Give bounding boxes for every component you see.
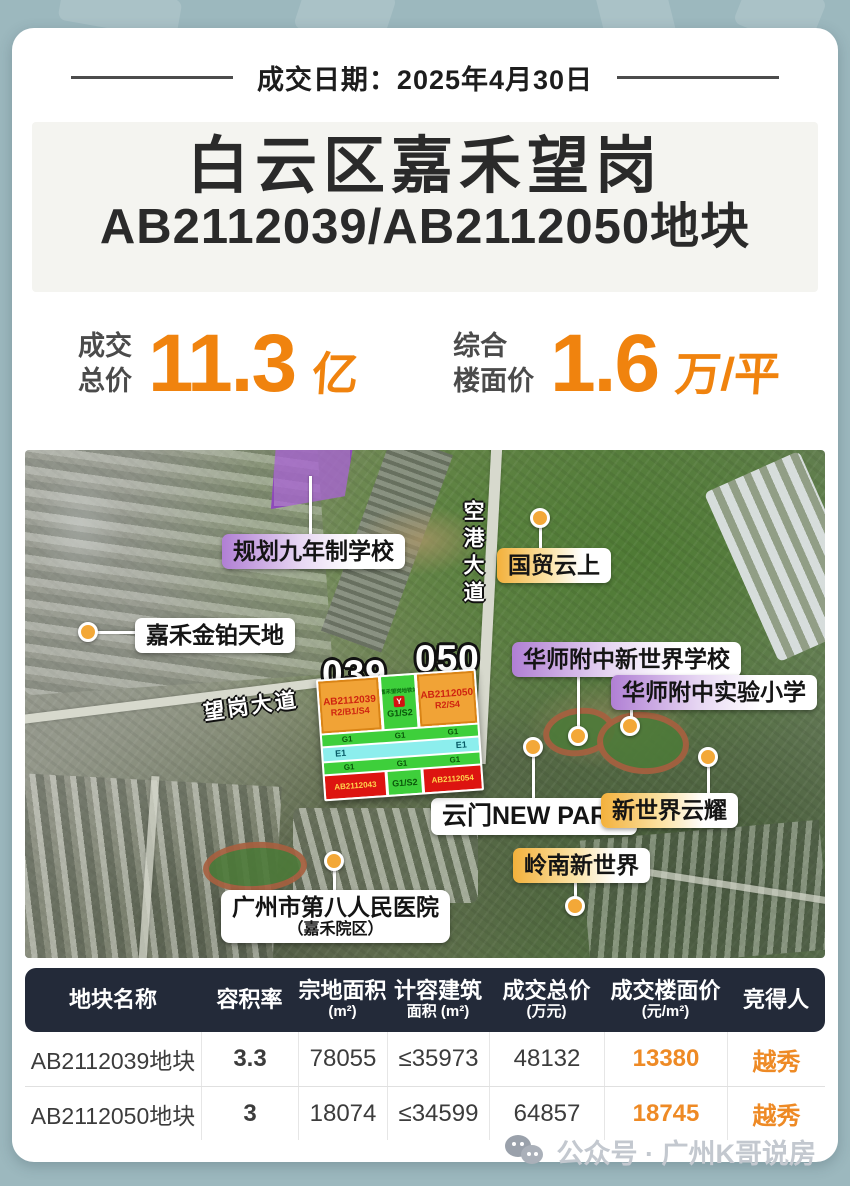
content-card: 成交日期：2025年4月30日 白云区嘉禾望岗 AB2112039/AB2112… xyxy=(12,28,838,1162)
metric-total-price-value: 11.3 xyxy=(148,325,295,403)
poi-dot-hospital xyxy=(324,851,344,871)
wechat-bubbles-icon xyxy=(505,1135,547,1169)
table-row: AB2112039地块 3.3 78055 ≤35973 48132 13380… xyxy=(25,1032,825,1086)
metric-total-price-unit: 亿 xyxy=(310,324,362,404)
metric-floor-price-unit: 万/平 xyxy=(673,324,783,404)
page-title-line1: 白云区嘉禾望岗 xyxy=(32,134,818,199)
page-title-line2: AB2112039/AB2112050地块 xyxy=(32,199,818,255)
inset-parcel-039: AB2112039 R2/B1/S4 xyxy=(318,677,381,733)
poi-dot-hsfz-primary xyxy=(620,716,640,736)
map-label-lingnan-new-world: 岭南新世界 xyxy=(513,848,650,883)
col-header-name: 地块名称 xyxy=(25,968,201,1032)
deal-date-row: 成交日期：2025年4月30日 xyxy=(12,58,838,97)
cell-far: 3.3 xyxy=(201,1032,298,1086)
cell-site-area: 78055 xyxy=(298,1032,387,1086)
cell-winner: 越秀 xyxy=(727,1032,825,1086)
title-box: 白云区嘉禾望岗 AB2112039/AB2112050地块 xyxy=(32,122,818,292)
date-decor-line-left xyxy=(71,76,233,79)
satellite-map: 规划九年制学校 国贸云上 嘉禾金铂天地 华师附中新世界学校 华师附中实验小学 云… xyxy=(25,450,825,958)
connector-line xyxy=(93,631,139,634)
metric-floor-price-label: 综合 楼面价 xyxy=(453,329,534,399)
map-warehouses xyxy=(704,451,825,662)
cell-site-area: 18074 xyxy=(298,1087,387,1140)
connector-line xyxy=(532,752,535,801)
poi-dot-yunyao xyxy=(698,747,718,767)
cell-gfa: ≤34599 xyxy=(387,1087,489,1140)
poi-dot-hsfz-new-world xyxy=(568,726,588,746)
parcel-table: 地块名称 容积率 宗地面积(m²) 计容建筑面积 (m²) 成交总价(万元) 成… xyxy=(25,968,825,1140)
connector-line xyxy=(577,672,580,734)
infographic-canvas: 成交日期：2025年4月30日 白云区嘉禾望岗 AB2112039/AB2112… xyxy=(0,0,850,1186)
table-header-row: 地块名称 容积率 宗地面积(m²) 计容建筑面积 (m²) 成交总价(万元) 成… xyxy=(25,968,825,1032)
poi-dot-lingnan xyxy=(565,896,585,916)
inset-parcel-mid-green: 嘉禾望岗地铁站 Y G1/S2 xyxy=(381,675,418,729)
col-header-floor-price: 成交楼面价(元/m²) xyxy=(604,968,727,1032)
inset-parcel-bottom-right: AB2112054 xyxy=(423,765,481,792)
metric-floor-price: 综合 楼面价 1.6 万/平 xyxy=(453,324,781,404)
planned-school-parcel-polygon xyxy=(271,450,353,509)
cell-price: 48132 xyxy=(489,1032,604,1086)
map-label-hsfz-primary: 华师附中实验小学 xyxy=(611,675,817,710)
metric-total-price: 成交 总价 11.3 亿 xyxy=(78,324,359,404)
inset-parcel-050: AB2112050 R2/S4 xyxy=(417,671,477,727)
cell-far: 3 xyxy=(201,1087,298,1140)
date-decor-line-right xyxy=(617,76,779,79)
inset-parcel-bottom-mid: G1/S2 xyxy=(388,770,423,795)
map-label-hospital: 广州市第八人民医院 （嘉禾院区） xyxy=(221,890,450,943)
map-label-new-world-yunyao: 新世界云耀 xyxy=(601,793,738,828)
zoning-inset: AB2112039 R2/B1/S4 嘉禾望岗地铁站 Y G1/S2 AB211… xyxy=(316,669,484,802)
col-header-site-area: 宗地面积(m²) xyxy=(298,968,387,1032)
key-metrics: 成交 总价 11.3 亿 综合 楼面价 1.6 万/平 xyxy=(12,324,838,404)
metric-total-price-label: 成交 总价 xyxy=(78,329,132,399)
map-label-guomao-yunshang: 国贸云上 xyxy=(497,548,611,583)
map-urban-patch xyxy=(580,820,825,958)
cell-gfa: ≤35973 xyxy=(387,1032,489,1086)
connector-line xyxy=(309,476,312,536)
metric-floor-price-value: 1.6 xyxy=(550,325,658,403)
col-header-far: 容积率 xyxy=(201,968,298,1032)
deal-date: 成交日期：2025年4月30日 xyxy=(257,58,593,97)
col-header-price: 成交总价(万元) xyxy=(489,968,604,1032)
poi-dot-jinbo xyxy=(78,622,98,642)
watermark-text: 公众号 · 广州K哥说房 xyxy=(557,1132,817,1171)
poi-dot-yunmen xyxy=(523,737,543,757)
poi-dot-guomao xyxy=(530,508,550,528)
cell-floor-price: 13380 xyxy=(604,1032,727,1086)
col-header-winner: 竞得人 xyxy=(727,968,825,1032)
cell-parcel-name: AB2112039地块 xyxy=(25,1032,201,1086)
map-label-hsfz-new-world: 华师附中新世界学校 xyxy=(512,642,741,677)
inset-parcel-bottom-left: AB2112043 xyxy=(325,772,386,799)
map-label-planned-school: 规划九年制学校 xyxy=(222,534,405,569)
connector-line xyxy=(539,526,542,550)
map-label-jiahe-jinbo: 嘉禾金铂天地 xyxy=(135,618,295,653)
metro-icon: Y xyxy=(393,696,405,708)
road-name-konggang: 空港大道 xyxy=(457,500,487,608)
watermark-footer: 公众号 · 广州K哥说房 xyxy=(505,1132,817,1171)
col-header-gfa: 计容建筑面积 (m²) xyxy=(387,968,489,1032)
cell-parcel-name: AB2112050地块 xyxy=(25,1087,201,1140)
